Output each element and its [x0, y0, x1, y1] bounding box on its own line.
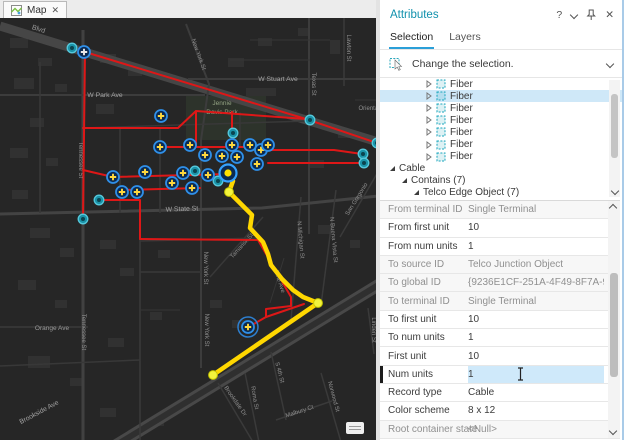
expanded-arrow-icon[interactable]	[414, 190, 419, 195]
property-value-field[interactable]: 10	[468, 219, 604, 236]
tree-label-fiber: Fiber	[450, 79, 473, 90]
building-footprint	[108, 338, 124, 347]
property-value-text: Telco Junction Object	[468, 259, 563, 270]
property-row[interactable]: Record typeCable	[380, 384, 620, 402]
building-footprint	[258, 38, 272, 46]
tree-node-fiber[interactable]: Fiber	[380, 151, 622, 163]
change-selection-icon	[389, 56, 405, 71]
street-label: W Park Ave	[87, 92, 123, 99]
tree-label-fiber: Fiber	[450, 151, 473, 162]
selected-device-core	[224, 169, 231, 176]
street-label: W State St	[166, 205, 199, 213]
panel-title: Attributes	[390, 9, 439, 21]
tree-node-fiber[interactable]: Fiber	[380, 90, 622, 102]
building-footprint	[228, 58, 244, 67]
close-icon[interactable]: ✕	[605, 9, 614, 21]
property-row[interactable]: Color scheme8 x 12	[380, 402, 620, 420]
junction-marker-core	[70, 46, 74, 50]
cable-vertex[interactable]	[314, 299, 323, 308]
street-label: Lawton St	[345, 35, 351, 62]
scroll-down-icon[interactable]	[611, 187, 619, 195]
property-row[interactable]: To num units1	[380, 329, 620, 347]
tree-node-telco-edge-object[interactable]: Telco Edge Object (7)	[380, 187, 622, 199]
building-footprint	[100, 240, 116, 249]
collapsed-arrow-icon[interactable]	[426, 153, 432, 161]
property-value: Single Terminal	[468, 201, 604, 218]
property-value-text: 10	[468, 222, 479, 233]
collapsed-arrow-icon[interactable]	[426, 128, 432, 136]
chevron-down-icon[interactable]	[570, 11, 578, 19]
property-row[interactable]: From first unit10	[380, 219, 620, 237]
pin-icon[interactable]	[586, 9, 596, 21]
property-row: To source IDTelco Junction Object	[380, 256, 620, 274]
help-icon[interactable]: ?	[556, 9, 562, 21]
building-footprint	[100, 408, 116, 417]
tree-node-contains[interactable]: Contains (7)	[380, 175, 622, 187]
property-value-field[interactable]: 1	[468, 329, 604, 346]
property-row: To terminal IDSingle Terminal	[380, 292, 620, 310]
street-label: W Stuart Ave	[258, 76, 298, 83]
expanded-arrow-icon[interactable]	[402, 178, 407, 183]
property-label: From first unit	[380, 222, 468, 233]
street-label: New York St	[203, 314, 209, 347]
building-footprint	[96, 104, 114, 114]
map-tab-close-icon[interactable]: ✕	[51, 5, 59, 16]
tab-map[interactable]: Map ✕	[3, 1, 67, 18]
fiber-feature-icon	[436, 115, 446, 125]
building-footprint	[55, 84, 67, 92]
junction-marker-core	[81, 217, 85, 221]
property-value-text: 10	[468, 314, 479, 325]
building-footprint	[120, 268, 134, 276]
property-value-field[interactable]: Cable	[468, 384, 604, 401]
building-footprint	[55, 300, 67, 308]
junction-marker-core	[231, 131, 235, 135]
property-row[interactable]: First unit10	[380, 347, 620, 365]
tree-node-fiber[interactable]: Fiber	[380, 102, 622, 114]
street-label: Oriental	[358, 106, 376, 112]
tree-label-fiber: Fiber	[450, 115, 473, 126]
selection-tree: FiberFiberFiberFiberFiberFiberFiber Cabl…	[380, 78, 622, 199]
property-row[interactable]: From num units1	[380, 238, 620, 256]
property-value-text: 1	[468, 332, 474, 343]
property-label: To terminal ID	[380, 296, 468, 307]
junction-marker-core	[362, 161, 366, 165]
expanded-arrow-icon[interactable]	[390, 166, 395, 171]
panel-tabs: Selection Layers	[380, 28, 622, 49]
property-value-field[interactable]: 8 x 12	[468, 402, 604, 419]
map-tab-icon	[11, 5, 22, 16]
property-label: To first unit	[380, 314, 468, 325]
building-footprint	[18, 280, 36, 290]
property-value: <Null>	[468, 421, 604, 438]
building-footprint	[30, 118, 44, 127]
fiber-feature-icon	[436, 79, 446, 89]
property-value-text: <Null>	[468, 424, 497, 435]
fiber-feature-icon	[436, 152, 446, 162]
property-value-text: Single Terminal	[468, 296, 536, 307]
fiber-feature-icon	[436, 127, 446, 137]
property-value: Single Terminal	[468, 292, 604, 309]
property-label: To num units	[380, 332, 468, 343]
tree-label-fiber: Fiber	[450, 139, 473, 150]
collapsed-arrow-icon[interactable]	[426, 104, 432, 112]
building-footprint	[30, 228, 50, 238]
tree-node-fiber[interactable]: Fiber	[380, 114, 622, 126]
property-row: From terminal IDSingle Terminal	[380, 201, 620, 219]
change-selection-label: Change the selection.	[412, 58, 514, 70]
chevron-down-icon[interactable]	[606, 59, 614, 67]
map-view[interactable]: BlvdW Park AveW Stuart AveTennessee StTe…	[0, 18, 376, 440]
building-footprint	[12, 190, 28, 199]
junction-marker-core	[308, 118, 312, 122]
park-label: Jennie	[212, 100, 232, 107]
tree-label-cable: Cable	[399, 163, 425, 174]
tree-node-fiber[interactable]: Fiber	[380, 138, 622, 150]
tree-label-fiber: Fiber	[450, 91, 473, 102]
collapsed-arrow-icon[interactable]	[426, 92, 432, 100]
tree-node-fiber[interactable]: Fiber	[380, 78, 622, 90]
property-value-field[interactable]: 10	[468, 311, 604, 328]
building-footprint	[246, 88, 276, 96]
tab-selection[interactable]: Selection	[390, 31, 433, 49]
collapsed-arrow-icon[interactable]	[426, 116, 432, 124]
property-value-text: Cable	[468, 387, 494, 398]
property-value: {9236E1CF-251A-4F49-8F7A-9B52B0A2	[468, 274, 604, 291]
building-footprint	[350, 240, 360, 248]
building-footprint	[46, 158, 58, 166]
building-footprint	[10, 148, 28, 158]
property-value-text: 1	[468, 241, 474, 252]
tree-node-fiber[interactable]: Fiber	[380, 126, 622, 138]
property-value-text: 8 x 12	[468, 405, 495, 416]
building-footprint	[10, 38, 28, 48]
fiber-feature-icon	[436, 103, 446, 113]
tree-label-fiber: Fiber	[450, 103, 473, 114]
property-label: From terminal ID	[380, 204, 468, 215]
attributes-panel: Attributes ? ✕ Selection Layers Change t…	[380, 0, 624, 440]
cable-line[interactable]	[140, 239, 258, 240]
property-value-field[interactable]: 1	[468, 366, 604, 383]
property-row: Root container state<Null>	[380, 421, 620, 439]
street-label: Tennessee St	[77, 142, 83, 179]
property-row[interactable]: To first unit10	[380, 311, 620, 329]
tree-label-telco-edge-object: Telco Edge Object (7)	[423, 187, 519, 198]
building-footprint	[330, 40, 340, 54]
property-label: To source ID	[380, 259, 468, 270]
street-label: New York St	[202, 252, 208, 285]
street-label: Texas St	[310, 72, 316, 95]
property-label: Root container state	[380, 424, 468, 435]
tree-node-cable[interactable]: Cable	[380, 163, 622, 175]
application-window: Map ✕ BlvdW Park AveW Stuart AveTennesse…	[0, 0, 624, 440]
collapsed-arrow-icon[interactable]	[426, 80, 432, 88]
fiber-feature-icon	[436, 91, 446, 101]
property-label: To global ID	[380, 277, 468, 288]
property-value-text: 1	[468, 369, 474, 380]
property-label: Record type	[380, 387, 468, 398]
street-label: Orange Ave	[35, 325, 70, 332]
property-value-text: 10	[468, 351, 479, 362]
junction-marker-core	[97, 198, 101, 202]
properties-table: From terminal IDSingle TerminalFrom firs…	[380, 200, 620, 440]
property-value: Telco Junction Object	[468, 256, 604, 273]
tree-label-contains: Contains (7)	[411, 175, 465, 186]
panel-header: Attributes ? ✕	[380, 0, 622, 28]
junction-marker-core	[216, 179, 220, 183]
fiber-feature-icon	[436, 140, 446, 150]
junction-marker-core	[193, 169, 197, 173]
building-footprint	[60, 248, 74, 257]
property-label: From num units	[380, 241, 468, 252]
property-row[interactable]: Num units1	[380, 366, 620, 384]
text-cursor-icon	[516, 367, 525, 381]
property-label: Num units	[380, 369, 468, 380]
map-attribution-icon[interactable]	[346, 422, 364, 434]
property-row: To global ID{9236E1CF-251A-4F49-8F7A-9B5…	[380, 274, 620, 292]
junction-marker-core	[361, 152, 365, 156]
building-footprint	[210, 300, 222, 308]
tree-scrollbar[interactable]	[609, 80, 620, 197]
property-label: First unit	[380, 351, 468, 362]
cable-vertex[interactable]	[225, 188, 234, 197]
property-value-field[interactable]: 10	[468, 347, 604, 364]
property-value-text: Single Terminal	[468, 204, 536, 215]
cable-vertex[interactable]	[209, 371, 218, 380]
collapsed-arrow-icon[interactable]	[426, 141, 432, 149]
scroll-down-icon[interactable]	[609, 427, 617, 435]
tree-label-fiber: Fiber	[450, 127, 473, 138]
map-tab-label: Map	[27, 5, 46, 16]
properties-scrollbar[interactable]	[608, 201, 620, 438]
scroll-up-icon[interactable]	[609, 204, 617, 212]
document-tabbar: Map ✕	[0, 0, 378, 19]
building-footprint	[28, 356, 50, 368]
property-label: Color scheme	[380, 405, 468, 416]
property-value-field[interactable]: 1	[468, 238, 604, 255]
street-label: Tennessee St	[80, 314, 86, 351]
tab-layers[interactable]: Layers	[449, 31, 481, 49]
change-selection-bar[interactable]: Change the selection.	[380, 49, 622, 78]
building-footprint	[158, 250, 170, 258]
building-footprint	[150, 312, 162, 320]
building-footprint	[14, 78, 34, 89]
building-footprint	[318, 225, 330, 234]
property-value-text: {9236E1CF-251A-4F49-8F7A-9B52B0A2	[468, 277, 604, 288]
